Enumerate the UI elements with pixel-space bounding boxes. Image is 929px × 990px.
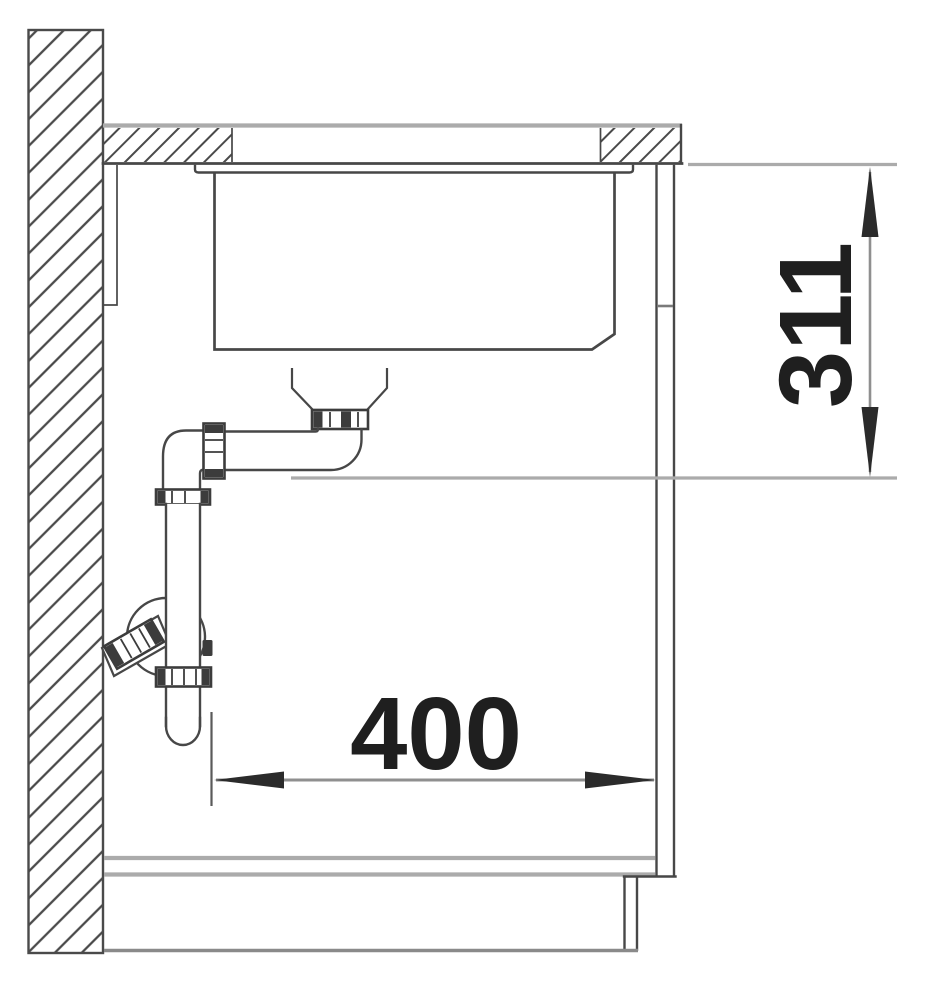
drop-nut-band-left [158,491,166,503]
drop-nut-band-right [201,491,209,503]
countertop-hatch-right [600,128,682,162]
dim-400-label: 400 [350,676,522,791]
countertop [103,125,682,164]
horizontal-drain-pipe [225,429,362,470]
trap-lower-nut-band-right [202,669,210,685]
dim-400-arrow-right [585,772,656,789]
cabinet-back-rail [103,165,117,305]
pipe-top-line [225,429,319,432]
sink [195,166,633,350]
wall-section [29,30,104,953]
drawing-canvas: 311 400 [0,0,929,990]
strainer-funnel [292,368,387,410]
strainer-locknut-rib-dark2 [341,412,351,428]
dim-311-arrow-up [862,167,879,237]
elbow-outer [163,431,204,491]
dim-311-label: 311 [758,242,873,408]
strainer-locknut-rib-dark1 [314,412,323,428]
sink-bowl [215,173,615,350]
pipe-bottom-elbow [225,430,362,471]
sink-installation-drawing: 311 400 [0,0,929,990]
drain-strainer [278,354,398,429]
wall-hatch [29,30,104,953]
dim-400-arrow-left [214,772,284,789]
trap-lower-nut-band-left [158,669,166,685]
drop-pipe-fill [167,504,199,724]
dimension-400: 400 [212,676,656,806]
p-trap [102,504,213,745]
elbow-nut-band-bottom [205,469,223,477]
elbow-nut-band-top [205,425,223,433]
cabinet-side-panel [657,166,675,876]
countertop-hatch-left [103,128,232,162]
elbow-fitting [156,424,225,505]
trap-clip [203,640,213,656]
cabinet-bottom [104,858,676,951]
dim-311-arrow-down [862,407,879,477]
sink-flange [195,166,633,173]
strainer-flange-plate [278,354,398,368]
dimension-311: 311 [291,165,897,479]
